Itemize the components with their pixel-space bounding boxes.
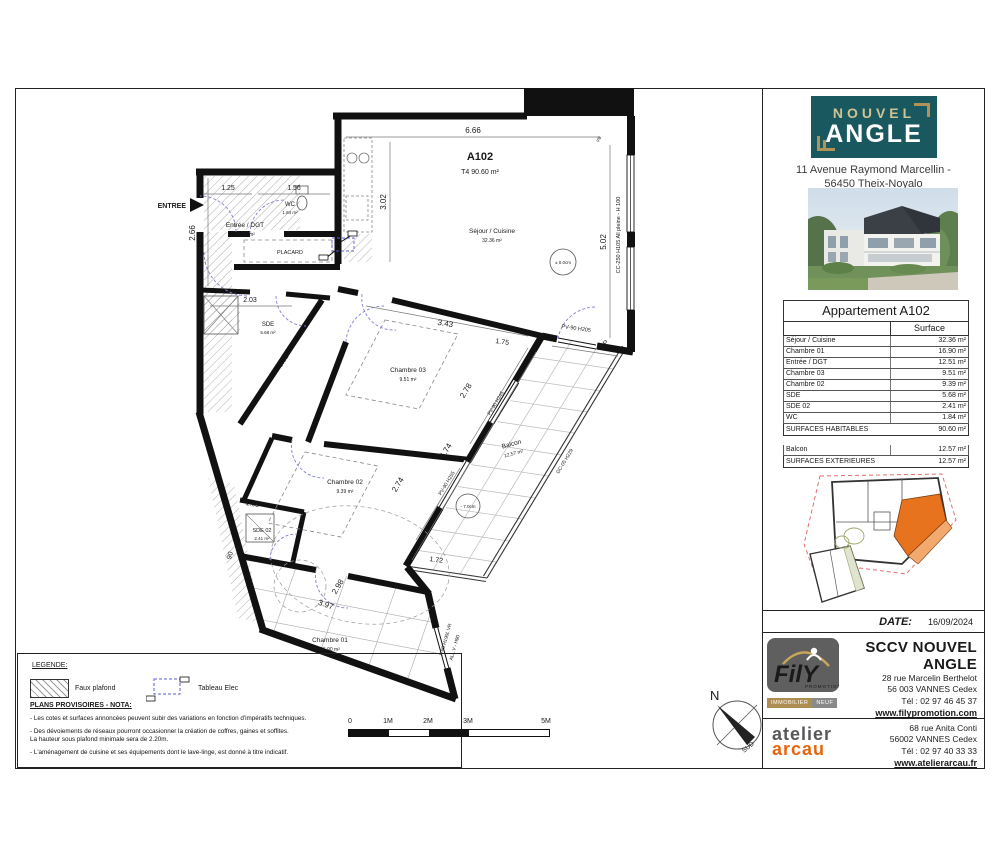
svg-text:1.56: 1.56	[287, 185, 301, 192]
placard-label: PLACARD	[277, 250, 303, 256]
svg-text:WC: WC	[285, 202, 296, 208]
scale-5m: 5M	[541, 718, 551, 725]
svg-text:Chambre 03: Chambre 03	[390, 367, 426, 374]
svg-text:SDE 02: SDE 02	[253, 528, 272, 534]
svg-text:32.36 m²: 32.36 m²	[482, 238, 502, 244]
building-photo	[808, 188, 958, 290]
fily-logo: FilY PROMOTION IMMOBILIER NEUF	[762, 633, 847, 718]
faux-plafond-swatch	[30, 679, 69, 698]
svg-text:2.98: 2.98	[330, 577, 346, 595]
immobilier-tag: IMMOBILIER	[767, 698, 812, 708]
unit-type: T4 90.60 m²	[461, 169, 499, 176]
svg-text:2.03: 2.03	[243, 297, 257, 304]
svg-text:1.72: 1.72	[429, 556, 444, 565]
date-row: DATE: 16/09/2024	[762, 610, 985, 633]
room-name-cell: Chambre 01	[784, 347, 891, 357]
fily-logo-bar: IMMOBILIER NEUF	[767, 698, 839, 708]
surface-row: Entrée / DGT12.51 m²	[783, 358, 969, 369]
surface-row: Chambre 0116.90 m²	[783, 347, 969, 358]
faux-plafond-label: Faux plafond	[75, 685, 115, 692]
architect-contact: 68 rue Anita Conti 56002 VANNES Cedex Té…	[877, 719, 985, 769]
room-name-cell: Balcon	[784, 445, 891, 455]
logo-corner-decoration	[914, 103, 930, 117]
svg-text:3.43: 3.43	[437, 318, 454, 329]
surface-row: Chambre 029.39 m²	[783, 380, 969, 391]
svg-text:1.25: 1.25	[221, 185, 235, 192]
svg-text:- 7.0cm: - 7.0cm	[460, 504, 475, 509]
architect-website-link[interactable]: www.atelierarcau.fr	[877, 758, 977, 768]
logo-arcau: arcau	[772, 742, 877, 757]
scale-1m: 1M	[383, 718, 393, 725]
north-label: N	[710, 688, 719, 703]
surfaces-rows: Séjour / Cuisine32.36 m²Chambre 0116.90 …	[783, 336, 969, 424]
habitable-total-row: SURFACES HABITABLES 90.60 m²	[783, 424, 969, 436]
svg-text:Séjour / Cuisine: Séjour / Cuisine	[469, 228, 515, 235]
nota-title: PLANS PROVISOIRES - NOTA:	[30, 702, 132, 709]
svg-text:Chambre 02: Chambre 02	[327, 479, 363, 486]
svg-text:9.51 m²: 9.51 m²	[400, 377, 417, 383]
room-name-cell: SDE	[784, 391, 891, 401]
svg-text:12.51 m²: 12.51 m²	[235, 232, 255, 238]
promoter-block: FilY PROMOTION IMMOBILIER NEUF SCCV NOUV…	[762, 633, 985, 718]
window-label: CC-250 H105 All pleine - H 100	[616, 197, 622, 274]
surfaces-table: Appartement A102 Surface Séjour / Cuisin…	[783, 300, 969, 468]
surface-row: WC1.84 m²	[783, 413, 969, 424]
exterior-rows: Balcon12.57 m²	[783, 445, 969, 456]
entrance-label: ENTREE	[158, 203, 187, 210]
svg-text:5.68 m²: 5.68 m²	[260, 330, 276, 335]
surfaces-table-header: Surface	[783, 322, 969, 336]
entrance-arrow: ENTREE	[158, 198, 204, 212]
legend-title: LEGENDE:	[32, 662, 67, 669]
scale-bar-segments	[348, 729, 550, 737]
scale-0: 0	[348, 718, 352, 725]
scale-bar: 0 1M 2M 3M 5M	[348, 718, 550, 742]
date-label: DATE:	[879, 616, 912, 628]
room-surface-cell: 9.39 m²	[891, 380, 968, 390]
architect-address-2: 56002 VANNES Cedex	[877, 734, 977, 745]
svg-text:9.39 m²: 9.39 m²	[337, 489, 354, 495]
room-name-cell: Chambre 02	[784, 380, 891, 390]
surface-row: SDE 022.41 m²	[783, 402, 969, 413]
scale-3m: 3M	[463, 718, 473, 725]
header-empty-cell	[784, 322, 891, 335]
svg-text:Entrée / DGT: Entrée / DGT	[226, 222, 264, 229]
door-arcs	[200, 196, 596, 608]
architect-block: atelier arcau 68 rue Anita Conti 56002 V…	[762, 718, 985, 769]
promoter-contact: SCCV NOUVEL ANGLE 28 rue Marcelin Berthe…	[847, 633, 985, 718]
legend-box: LEGENDE: Faux plafond Tableau Elec PLANS…	[17, 653, 462, 768]
room-surface-cell: 12.51 m²	[891, 358, 968, 368]
svg-text:3.97: 3.97	[317, 598, 335, 612]
nota-item: - L'aménagement de cuisine et ses équipe…	[30, 749, 450, 758]
promoter-address-1: 28 rue Marcelin Berthelot	[847, 673, 977, 684]
neuf-tag: NEUF	[812, 698, 837, 708]
room-name-cell: Séjour / Cuisine	[784, 336, 891, 346]
architect-address-1: 68 rue Anita Conti	[877, 723, 977, 734]
svg-text:2.66: 2.66	[188, 225, 197, 241]
table-gap	[783, 436, 969, 445]
address-line-1: 11 Avenue Raymond Marcellin -	[770, 164, 977, 178]
tableau-elec-symbol	[146, 676, 192, 707]
unit-id: A102	[467, 151, 493, 163]
svg-text:2.41 m²: 2.41 m²	[254, 536, 270, 541]
surface-row: Balcon12.57 m²	[783, 445, 969, 456]
svg-text:1.65: 1.65	[245, 500, 260, 509]
promoter-address-2: 56 003 VANNES Cedex	[847, 684, 977, 695]
architect-phone: Tél : 02 97 40 33 33	[877, 746, 977, 757]
room-surface-cell: 9.51 m²	[891, 369, 968, 379]
room-surface-cell: 2.41 m²	[891, 402, 968, 412]
surface-row: Chambre 039.51 m²	[783, 369, 969, 380]
tableau-elec-label: Tableau Elec	[198, 685, 238, 692]
room-name-cell: Chambre 03	[784, 369, 891, 379]
surface-row: Séjour / Cuisine32.36 m²	[783, 336, 969, 347]
svg-text:3.02: 3.02	[379, 194, 388, 210]
room-surface-cell: 5.68 m²	[891, 391, 968, 401]
total-label: SURFACES HABITABLES	[784, 424, 890, 435]
windows	[434, 155, 634, 669]
window-label: PV-90 H205	[561, 324, 591, 334]
svg-text:Chambre 01: Chambre 01	[312, 637, 348, 644]
fily-logo-graphic: FilY PROMOTION	[767, 638, 839, 692]
room-name-cell: Entrée / DGT	[784, 358, 891, 368]
surfaces-table-title: Appartement A102	[783, 300, 969, 322]
window-label: VB	[595, 135, 602, 143]
room-name-cell: SDE 02	[784, 402, 891, 412]
room-surface-cell: 16.90 m²	[891, 347, 968, 357]
room-name-cell: WC	[784, 413, 891, 423]
key-plan	[790, 460, 966, 610]
header-surface-cell: Surface	[891, 322, 968, 335]
room-surface-cell: 32.36 m²	[891, 336, 968, 346]
promoter-website-link[interactable]: www.filypromotion.com	[847, 708, 977, 718]
brand-logo: NOUVEL ANGLE	[811, 96, 937, 158]
north-arrow: N SUD	[700, 683, 772, 763]
date-value: 16/09/2024	[928, 617, 973, 627]
room-surface-cell: 1.84 m²	[891, 413, 968, 423]
svg-text:SDE: SDE	[262, 322, 274, 328]
logo-corner-decoration	[823, 140, 835, 151]
svg-text:PROMOTION: PROMOTION	[805, 684, 839, 689]
room-surface-cell: 12.57 m²	[891, 445, 968, 455]
svg-text:5.02: 5.02	[599, 234, 608, 250]
atelier-arcau-logo: atelier arcau	[762, 719, 877, 769]
svg-text:12.57 m²: 12.57 m²	[503, 448, 524, 459]
svg-text:2.74: 2.74	[390, 475, 406, 493]
drawing-sheet: ENTREE 6.66 3.02 5.02 2.66 1.25 1.56 2.0…	[0, 0, 1000, 857]
total-value: 90.60 m²	[890, 424, 968, 435]
promoter-name: SCCV NOUVEL ANGLE	[847, 639, 977, 673]
svg-text:6.66: 6.66	[465, 126, 481, 135]
surface-row: SDE5.68 m²	[783, 391, 969, 402]
scale-2m: 2M	[423, 718, 433, 725]
svg-text:1.75: 1.75	[495, 338, 510, 347]
svg-text:1.84 m²: 1.84 m²	[282, 210, 298, 215]
svg-text:± 0.0cm: ± 0.0cm	[555, 260, 571, 265]
promoter-phone: Tél : 02 97 46 45 37	[847, 696, 977, 707]
svg-text:2.78: 2.78	[458, 381, 474, 399]
